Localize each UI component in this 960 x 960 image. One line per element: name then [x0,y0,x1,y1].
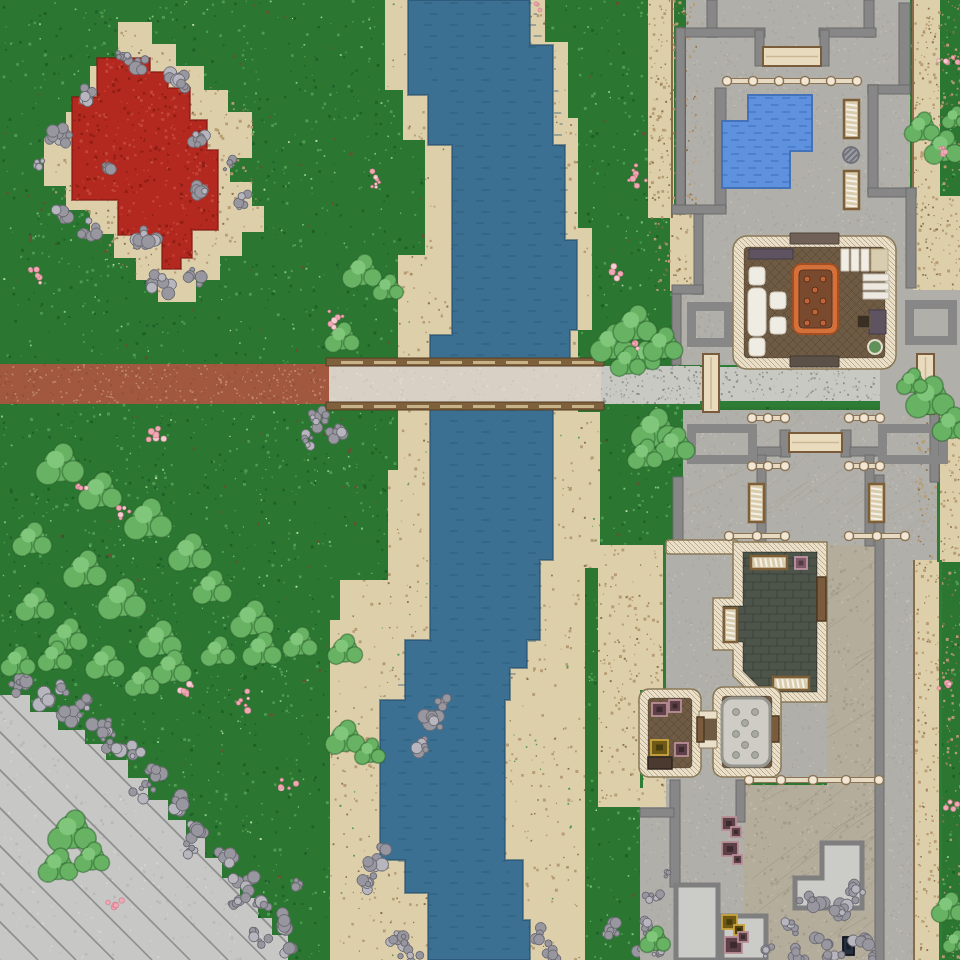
central-gate[interactable] [776,426,854,458]
dirt-road-west[interactable] [0,360,338,406]
river[interactable] [330,0,585,350]
bridge[interactable] [322,352,606,414]
garden-pond[interactable] [718,90,816,192]
blood-pool[interactable] [55,20,270,310]
manor-house[interactable] [730,232,898,372]
game-map-viewport [0,0,960,960]
footpath-west[interactable] [646,0,676,292]
north-gate[interactable] [752,24,834,70]
great-hall[interactable] [708,538,830,706]
stockyard[interactable] [742,783,878,960]
footpath-east[interactable] [911,0,960,292]
boulder-slope[interactable] [0,688,300,960]
storeroom-east[interactable] [710,684,782,778]
storeroom-west[interactable] [638,686,704,778]
